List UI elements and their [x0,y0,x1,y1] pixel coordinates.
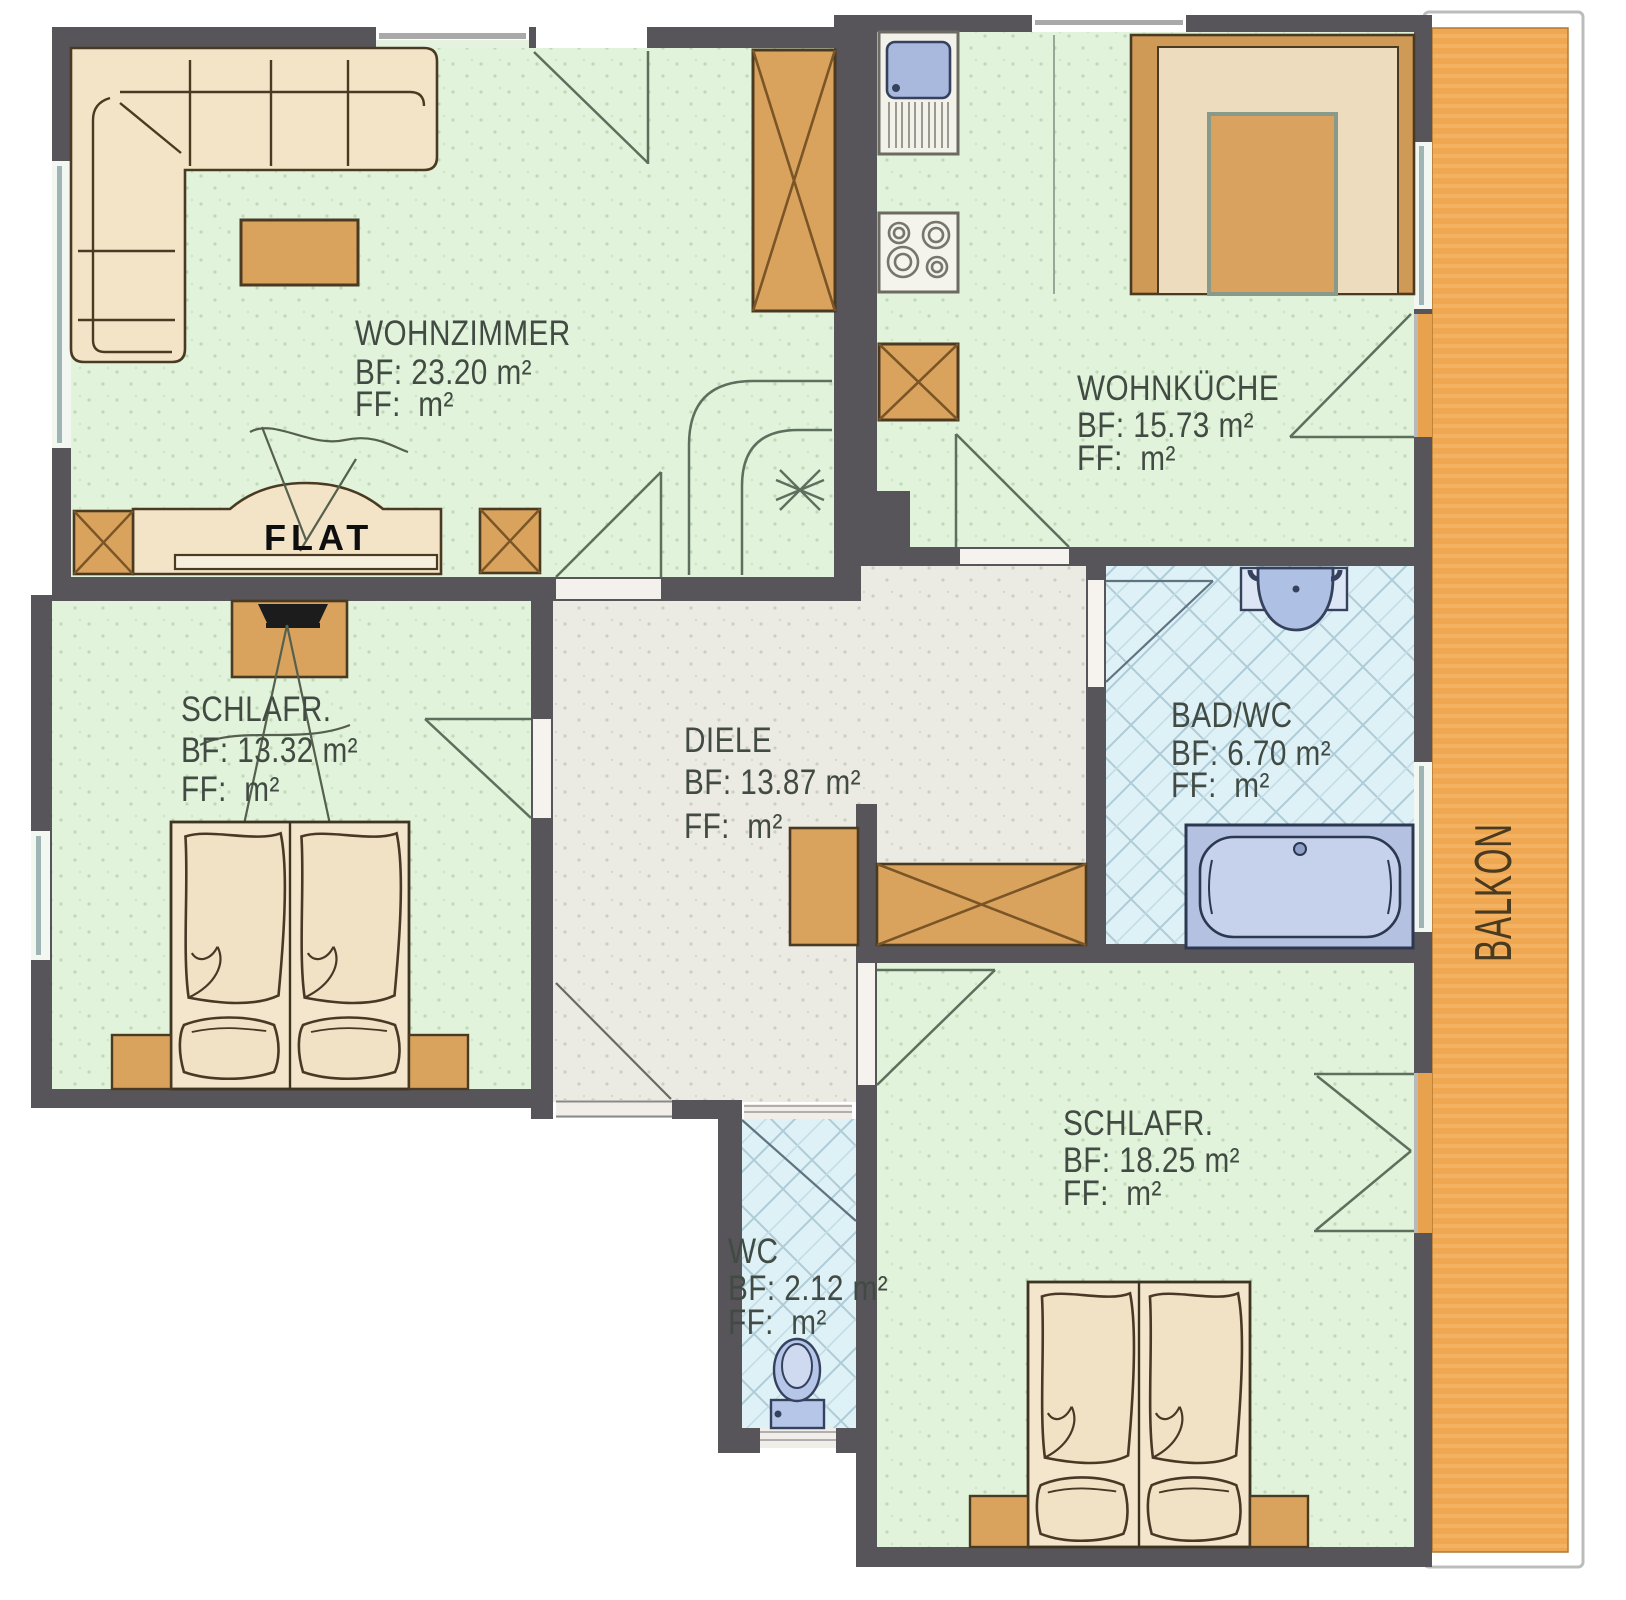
svg-text:WOHNKÜCHE: WOHNKÜCHE [1077,369,1279,408]
svg-text:BF: 13.87 m²: BF: 13.87 m² [684,763,861,802]
svg-text:BAD/WC: BAD/WC [1171,696,1293,735]
svg-text:FF: m²: FF: m² [1063,1174,1162,1213]
svg-text:SCHLAFR.: SCHLAFR. [1063,1104,1213,1143]
svg-text:WOHNZIMMER: WOHNZIMMER [355,314,571,353]
svg-text:BF: 13.32 m²: BF: 13.32 m² [181,731,358,770]
svg-text:FF: m²: FF: m² [355,385,454,424]
svg-text:DIELE: DIELE [684,721,772,760]
svg-text:FLAT: FLAT [264,517,373,558]
svg-text:WC: WC [728,1232,778,1271]
svg-text:FF: m²: FF: m² [684,807,783,846]
svg-text:FF: m²: FF: m² [181,770,280,809]
svg-text:FF: m²: FF: m² [1077,439,1176,478]
svg-text:FF: m²: FF: m² [728,1303,827,1342]
svg-text:BF: 2.12 m²: BF: 2.12 m² [728,1269,888,1308]
svg-text:SCHLAFR.: SCHLAFR. [181,690,331,729]
svg-text:BALKON: BALKON [1465,823,1523,962]
svg-text:FF: m²: FF: m² [1171,766,1270,805]
